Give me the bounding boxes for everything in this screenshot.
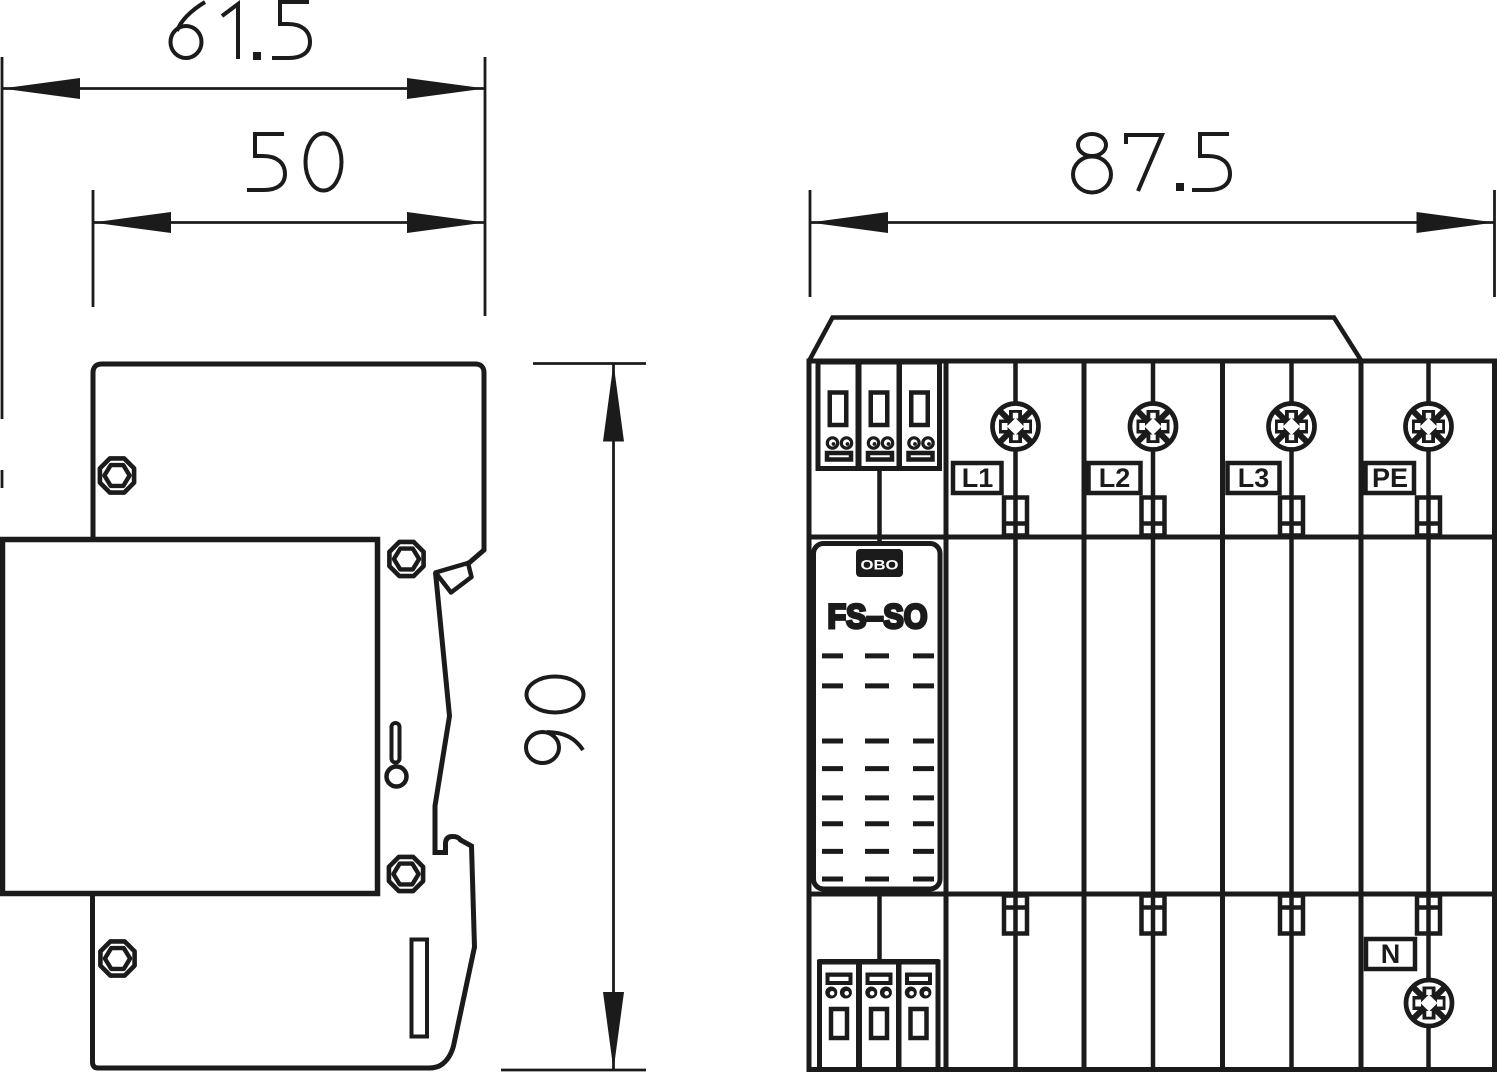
svg-text:L3: L3 bbox=[1238, 463, 1270, 493]
svg-text:FS–SO: FS–SO bbox=[828, 598, 928, 636]
svg-text:OBO: OBO bbox=[861, 557, 899, 573]
svg-text:L2: L2 bbox=[1099, 463, 1131, 493]
svg-text:N: N bbox=[1381, 939, 1401, 969]
svg-text:L1: L1 bbox=[962, 463, 994, 493]
svg-text:PE: PE bbox=[1372, 463, 1408, 493]
